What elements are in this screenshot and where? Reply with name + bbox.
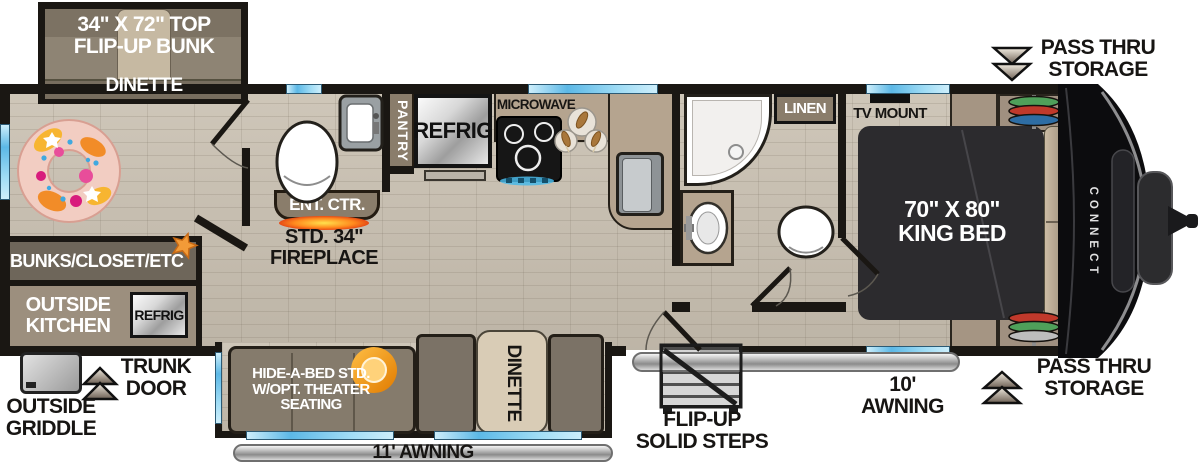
floorplan: REFRIG ENT. CTR. REFRIG LINEN xyxy=(0,0,1200,463)
linen-closet: LINEN xyxy=(774,94,836,124)
bunks-closet-label: BUNKS/CLOSET/ETC xyxy=(10,252,178,271)
fireplace-line2: FIREPLACE xyxy=(258,248,390,269)
pass-thru-top-line2: STORAGE xyxy=(1028,59,1168,81)
trunk-door-line2: DOOR xyxy=(116,378,196,400)
outside-griddle-line1: OUTSIDE xyxy=(0,396,102,418)
refrig-label: REFRIG xyxy=(413,120,493,143)
outside-kitchen-line2: KITCHEN xyxy=(8,316,128,337)
pass-thru-bottom-label: PASS THRU STORAGE xyxy=(1020,356,1168,400)
king-bed-label: 70" X 80" KING BED xyxy=(866,198,1038,246)
steps-label: FLIP-UP SOLID STEPS xyxy=(632,409,772,453)
fireplace-line1: STD. 34" xyxy=(258,227,390,248)
dinette-bench-right xyxy=(548,334,604,434)
outside-kitchen-label: OUTSIDE KITCHEN xyxy=(8,295,128,337)
outside-refrig-label: REFRIG xyxy=(134,308,183,323)
outside-griddle-label: OUTSIDE GRIDDLE xyxy=(0,396,102,440)
wall-bath-bottom-a xyxy=(672,302,690,312)
king-bed-line1: 70" X 80" xyxy=(866,198,1038,222)
king-bed-line2: KING BED xyxy=(866,222,1038,246)
wall-pantry-bottom xyxy=(382,166,414,174)
window-top-1 xyxy=(286,84,322,94)
outside-refrig-box: REFRIG xyxy=(130,292,188,338)
brand-label: CONNECT xyxy=(1086,160,1100,305)
trunk-door-line1: TRUNK xyxy=(116,356,196,378)
window-slideout-bottom-2 xyxy=(434,431,582,440)
dinette-rear-label: DINETTE xyxy=(503,340,523,426)
refrig-step xyxy=(424,170,486,181)
hide-a-bed-line1: HIDE-A-BED STD. xyxy=(232,366,390,382)
pass-thru-top-arrows-icon xyxy=(994,48,1030,80)
stove xyxy=(496,116,562,182)
dinette-front-label: DINETTE xyxy=(48,76,240,96)
refrig-box: REFRIG xyxy=(414,94,492,168)
awning-10-line1: 10' xyxy=(845,374,960,396)
pass-thru-bottom-line2: STORAGE xyxy=(1020,378,1168,400)
hide-a-bed-label: HIDE-A-BED STD. W/OPT. THEATER SEATING xyxy=(232,366,390,413)
window-slideout-bottom-1 xyxy=(246,431,394,440)
outside-griddle-line2: GRIDDLE xyxy=(0,418,102,440)
ent-ctr-label: ENT. CTR. xyxy=(289,196,365,214)
pass-thru-top-line1: PASS THRU xyxy=(1028,37,1168,59)
steps-line2: SOLID STEPS xyxy=(632,431,772,453)
fireplace-label: STD. 34" FIREPLACE xyxy=(258,227,390,269)
kitchen-sink-basin xyxy=(622,158,652,212)
tv-mount-label: TV MOUNT xyxy=(840,106,940,122)
awning-10-tube xyxy=(632,352,960,372)
awning-11-label: 11' AWNING xyxy=(233,444,613,462)
outside-kitchen-line1: OUTSIDE xyxy=(8,295,128,316)
pass-thru-top-label: PASS THRU STORAGE xyxy=(1028,37,1168,81)
bunk-label-line2: FLIP-UP BUNK xyxy=(48,36,240,58)
bunk-label-line1: 34" X 72" TOP xyxy=(48,14,240,36)
trunk-door-label: TRUNK DOOR xyxy=(116,356,196,400)
wall-midbath-right xyxy=(382,90,390,192)
headboard xyxy=(1044,126,1072,322)
pantry-label: PANTRY xyxy=(395,96,410,166)
ent-ctr-cabinet: ENT. CTR. xyxy=(274,190,380,220)
bunk-label: 34" X 72" TOP FLIP-UP BUNK xyxy=(48,14,240,58)
hide-a-bed-line3: SEATING xyxy=(232,397,390,413)
hide-a-bed-line2: W/OPT. THEATER xyxy=(232,382,390,398)
wall-midbath-left xyxy=(242,148,250,226)
wall-bottom-mid xyxy=(606,346,626,356)
window-top-bedroom xyxy=(866,84,950,94)
hitch xyxy=(1138,172,1198,284)
microwave-label: MICROWAVE xyxy=(492,98,580,112)
tv-bar xyxy=(870,94,910,103)
window-rear-wall xyxy=(0,124,10,200)
dinette-bench-left xyxy=(416,334,476,434)
bath-vanity xyxy=(680,190,734,266)
wall-kitchen-bath xyxy=(672,90,680,266)
awning-10-label: 10' AWNING xyxy=(845,374,960,418)
pass-thru-bottom-line1: PASS THRU xyxy=(1020,356,1168,378)
window-slideout-left xyxy=(215,352,222,424)
awning-10-line2: AWNING xyxy=(845,396,960,418)
headboard-divider xyxy=(1046,221,1068,223)
nightstand-top xyxy=(950,92,998,130)
griddle-knob xyxy=(26,382,36,388)
wall-bath-bottom-b xyxy=(752,302,846,312)
pass-thru-bottom-arrows-icon xyxy=(984,372,1020,403)
window-top-kitchen xyxy=(528,84,658,94)
linen-label: LINEN xyxy=(784,101,826,117)
steps-line1: FLIP-UP xyxy=(632,409,772,431)
